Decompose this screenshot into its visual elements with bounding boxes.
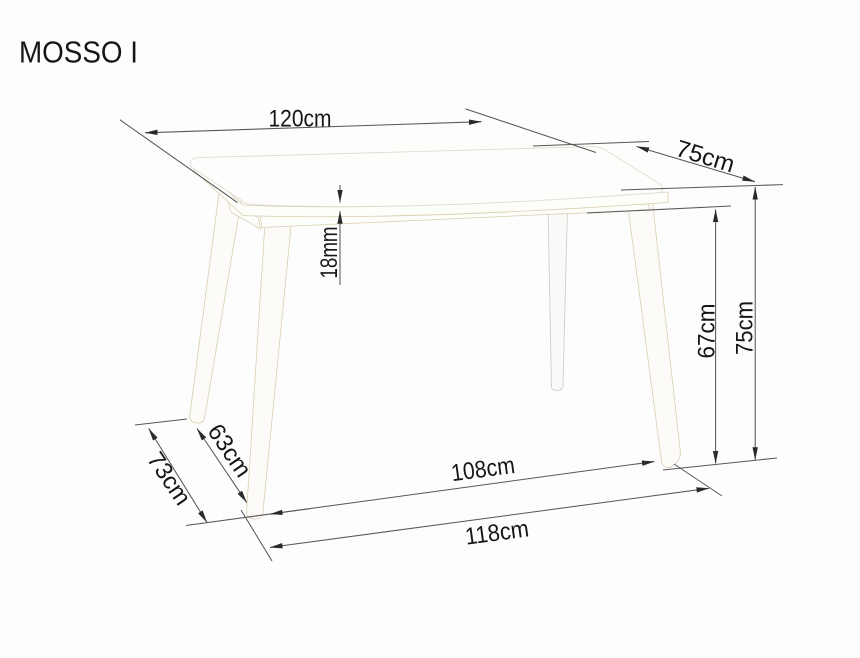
svg-text:18mm: 18mm (316, 227, 343, 279)
svg-text:67cm: 67cm (694, 304, 721, 359)
svg-text:MOSSO I: MOSSO I (19, 35, 138, 70)
svg-text:120cm: 120cm (269, 106, 332, 133)
svg-text:75cm: 75cm (732, 301, 759, 355)
